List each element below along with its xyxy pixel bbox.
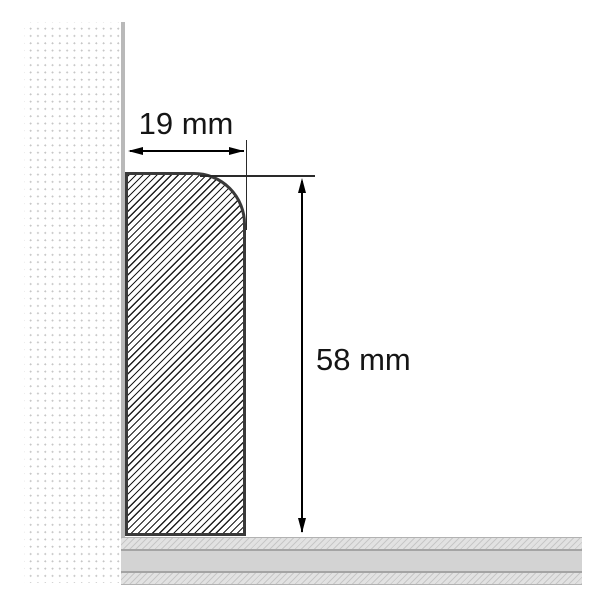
diagram-canvas: 19 mm 58 mm — [0, 0, 604, 604]
width-dimension-label: 19 mm — [126, 108, 246, 139]
height-dimension-line — [301, 181, 303, 532]
floor-bottom-hatch-layer — [121, 573, 582, 585]
arrow-right-icon — [229, 147, 244, 155]
wall-texture — [24, 22, 120, 583]
arrow-left-icon — [128, 147, 143, 155]
width-extension-line — [246, 140, 247, 230]
skirting-profile — [125, 172, 246, 536]
height-dimension-label: 58 mm — [316, 344, 411, 375]
floor-middle-layer — [121, 551, 582, 571]
floor-top-hatch-layer — [121, 537, 582, 549]
arrow-up-icon — [298, 178, 306, 193]
height-extension-line — [200, 175, 315, 177]
width-dimension-line — [130, 150, 244, 152]
arrow-down-icon — [298, 518, 306, 533]
floor-section — [121, 537, 582, 583]
